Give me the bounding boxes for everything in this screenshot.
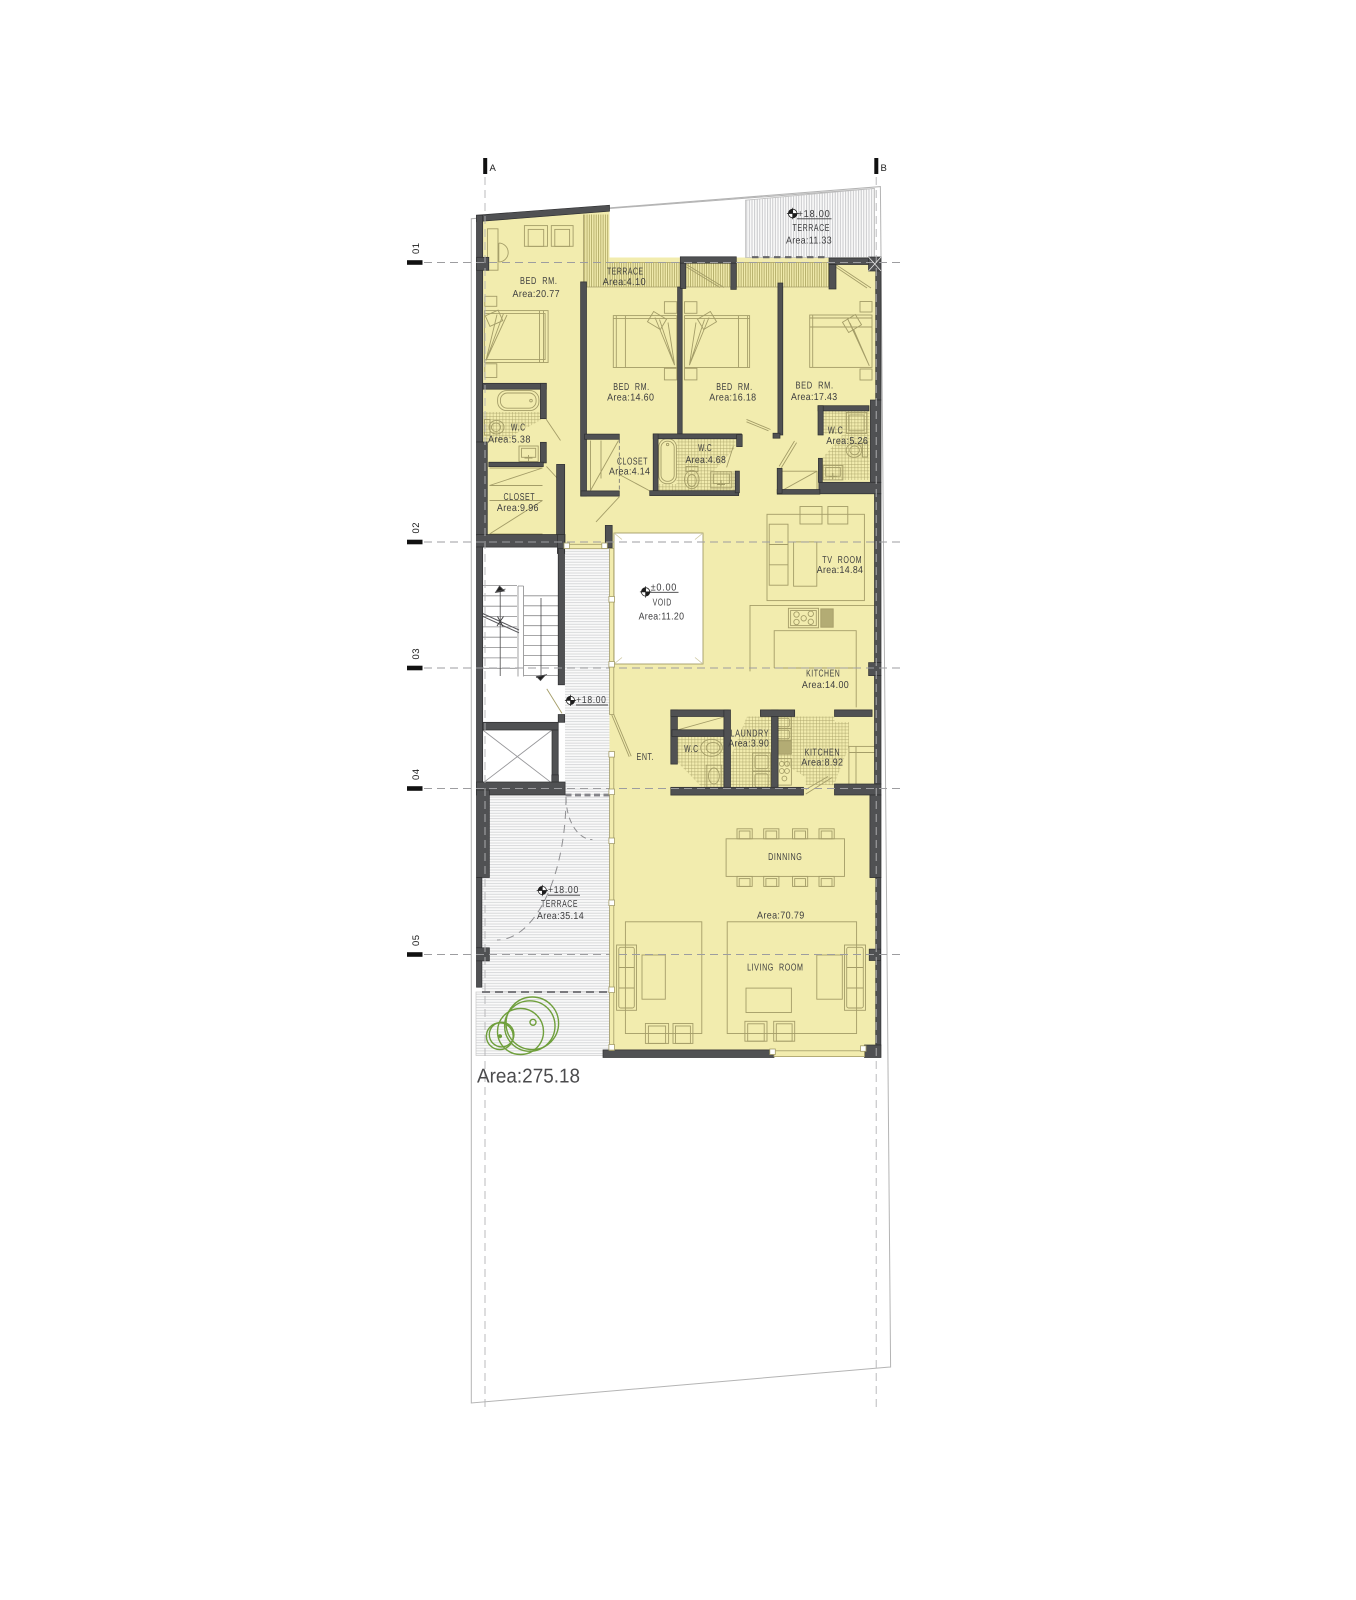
- svg-text:Area:4.14: Area:4.14: [609, 466, 650, 477]
- svg-text:Area:3.90: Area:3.90: [728, 739, 769, 750]
- svg-text:ENT.: ENT.: [637, 752, 655, 763]
- svg-text:Area:9.96: Area:9.96: [497, 503, 539, 514]
- svg-text:TERRACE: TERRACE: [541, 899, 578, 910]
- svg-text:04: 04: [411, 768, 422, 780]
- svg-text:TERRACE: TERRACE: [793, 223, 831, 234]
- svg-text:Area:14.84: Area:14.84: [817, 565, 864, 576]
- svg-text:+18.00: +18.00: [548, 885, 579, 896]
- svg-text:Area:11.33: Area:11.33: [786, 236, 832, 247]
- svg-text:TERRACE: TERRACE: [607, 267, 644, 278]
- svg-text:Area:5.26: Area:5.26: [826, 436, 868, 447]
- svg-text:03: 03: [411, 648, 422, 660]
- svg-text:Area:5.38: Area:5.38: [488, 435, 531, 446]
- svg-text:Area:14.00: Area:14.00: [802, 680, 849, 691]
- svg-text:LIVING ROOM: LIVING ROOM: [747, 963, 803, 974]
- svg-text:Area:4.10: Area:4.10: [603, 277, 646, 288]
- svg-text:05: 05: [411, 934, 422, 946]
- svg-text:A: A: [490, 163, 497, 174]
- svg-text:W.C: W.C: [698, 443, 712, 454]
- svg-text:Area:4.68: Area:4.68: [686, 455, 727, 466]
- svg-text:+18.00: +18.00: [576, 695, 606, 706]
- svg-text:BED RM.: BED RM.: [520, 276, 558, 287]
- svg-text:01: 01: [411, 242, 422, 254]
- svg-text:W.C: W.C: [828, 426, 844, 437]
- svg-text:02: 02: [411, 522, 422, 534]
- svg-text:W.C: W.C: [511, 423, 526, 434]
- svg-text:Area:275.18: Area:275.18: [477, 1065, 580, 1087]
- svg-text:Area:16.18: Area:16.18: [709, 392, 756, 403]
- svg-text:VOID: VOID: [653, 598, 672, 609]
- svg-text:Area:20.77: Area:20.77: [513, 289, 561, 300]
- svg-text:W.C: W.C: [684, 744, 698, 755]
- svg-text:+18.00: +18.00: [798, 209, 831, 220]
- svg-text:KITCHEN: KITCHEN: [806, 669, 840, 680]
- svg-text:Area:14.60: Area:14.60: [607, 392, 654, 403]
- svg-text:BED RM.: BED RM.: [796, 381, 834, 392]
- svg-text:DINNING: DINNING: [768, 852, 802, 863]
- svg-text:Area:35.14: Area:35.14: [537, 911, 584, 922]
- svg-text:Area:8.92: Area:8.92: [801, 757, 843, 768]
- svg-text:Area:17.43: Area:17.43: [791, 392, 838, 403]
- svg-text:Area:11.20: Area:11.20: [639, 612, 685, 623]
- svg-text:CLOSET: CLOSET: [504, 492, 536, 503]
- svg-text:Area:70.79: Area:70.79: [757, 911, 805, 922]
- svg-text:B: B: [881, 163, 888, 174]
